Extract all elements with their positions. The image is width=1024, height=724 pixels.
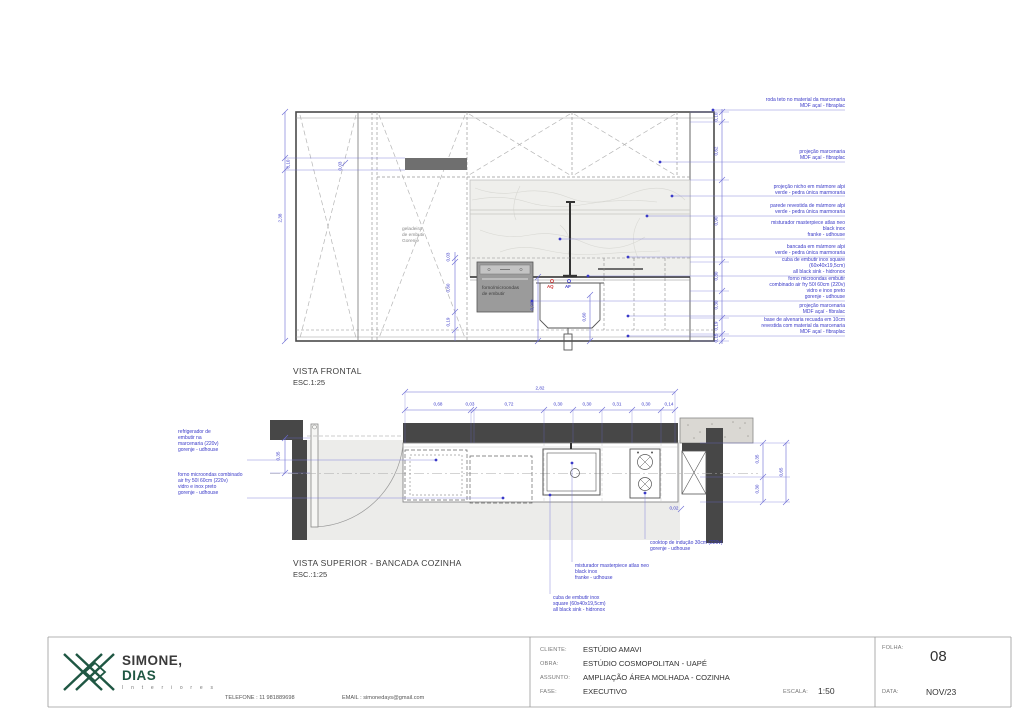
email: EMAIL : simonedays@gmail.com [342,695,424,701]
column-x [682,451,706,494]
annotation-projecao-1: projeção marcenaria MDF açaí - fibraplac [799,150,845,162]
escala-value: 1:50 [818,686,835,696]
annotation-roda-teto: roda teto no material da marcenaria MDF … [766,98,845,110]
assunto-label: ASSUNTO: [540,675,570,681]
annotation-forno: forno microondas embutir combinado air f… [769,277,845,301]
dim-plan-0: 0,68 [434,402,443,407]
top-wall [403,423,678,443]
dim-plan-3: 0,30 [554,402,563,407]
annotation-misturador-plan: misturador masterpiece atlas neo black i… [575,564,649,582]
dim-right-1: 0,62 [714,147,719,156]
cliente-label: CLIENTE: [540,647,567,653]
dim-right-2: 0,90 [714,217,719,226]
logo-name-line2: DIAS [122,668,156,683]
dim-plan-4: 0,30 [583,402,592,407]
cliente-value: ESTÚDIO AMAVI [583,645,642,654]
dim-right-6: 0,15 [714,334,719,343]
cold-water-label: AF [565,284,571,289]
dim-oven-0: 0,03 [446,253,451,262]
dim-total-height: 2,38 [278,214,283,223]
dim-plan-1: 0,03 [466,402,475,407]
superior-view-title: VISTA SUPERIOR - BANCADA COZINHA [293,558,462,568]
annotation-nicho: projeção nicho em mármore alpi verde - p… [774,185,845,197]
dim-right-4: 0,30 [714,301,719,310]
dim-plan-left: 0,35 [276,452,281,461]
oven-label: forno/microondas de embutir [482,286,519,298]
annotation-misturador: misturador masterpiece atlas neo black i… [771,221,845,239]
annotation-bancada: bancada em mármore alpi verde - pedra ún… [775,245,845,257]
obra-value: ESTÚDIO COSMOPOLITAN - UAPÉ [583,659,707,668]
dim-plan-7: 0,14 [665,402,674,407]
countertop-plan [403,443,678,502]
dim-oven-2: 0,19 [446,318,451,327]
elevation-drawing [296,112,714,350]
annotation-refrigerador: refrigerador de embutir na marcenaria (2… [178,430,219,454]
dim-oven-1: 0,60 [446,284,451,293]
annotation-base-alvenaria: base de alvenaria recuada em 10cm revest… [761,318,845,336]
annotation-cuba-plan: cuba de embutir inox square (60x40x19,5c… [553,596,606,614]
escala-label: ESCALA: [783,689,808,695]
fase-value: EXECUTIVO [583,687,627,696]
dim-right-0: 0,10 [714,113,719,122]
dim-gap: 0,03 [338,162,343,171]
niche-shelf [405,158,467,170]
linework-layer [0,0,1024,724]
dim-right-5: 0,19 [714,322,719,331]
left-wall-leg [292,440,307,540]
dim-plan-6: 0,30 [642,402,651,407]
left-wall-top [270,420,303,440]
assunto-value: AMPLIAÇÃO ÁREA MOLHADA - COZINHA [583,673,730,682]
dim-sink-1: 0,60 [582,313,587,322]
dim-sink-0: 0,90 [530,302,535,311]
logo-name-line3: I n t e r i o r e s [122,685,216,691]
dim-plan-5: 0,31 [613,402,622,407]
telefone: TELEFONE : 11 981889698 [225,695,295,701]
dim-plan-2: 0,72 [505,402,514,407]
superior-view-scale: ESC.:1:25 [293,570,327,579]
dim-shelf: 0,10 [286,160,291,169]
logo-mark [64,654,114,690]
annotation-cooktop: cooktop de indução 30cm (220v) gorenje -… [650,541,723,553]
folha-label: FOLHA: [882,645,903,651]
plan-drawing [270,418,758,543]
annotation-projecao-2: projeção marcenaria MDF açaí - fibralac [799,304,845,316]
titleblock-lines [48,637,1011,707]
data-value: NOV/23 [926,687,956,697]
annotation-cuba: cuba de embutir inox square (60x40x19,5c… [782,258,845,276]
dim-right-3: 0,30 [714,272,719,281]
fridge-label: geladeira de embutir Gorenje [402,227,425,244]
dim-cooktop-offset: 0,02 [670,506,679,511]
annotation-forno-plan: forno microondas combinado air fry 50l 6… [178,473,242,497]
logo-name-line1: SIMONE, [122,653,183,668]
dim-plan-right-0: 0,35 [755,455,760,464]
sink-elevation [536,280,604,351]
fase-label: FASE: [540,689,557,695]
frontal-view-scale: ESC.1:25 [293,378,325,387]
right-wall [706,428,723,543]
annotation-parede: parede revestida de mármore alpi verde -… [770,204,845,216]
folha-value: 08 [930,648,947,665]
hot-water-label: AQ [547,284,554,289]
drawing-sheet: VISTA FRONTAL ESC.1:25 VISTA SUPERIOR - … [0,0,1024,724]
dim-plan-total: 2,82 [536,386,545,391]
frontal-view-title: VISTA FRONTAL [293,366,362,376]
data-label: DATA: [882,689,899,695]
dim-plan-right-2: 0,65 [779,468,784,477]
dim-plan-right-1: 0,30 [755,485,760,494]
obra-label: OBRA: [540,661,558,667]
